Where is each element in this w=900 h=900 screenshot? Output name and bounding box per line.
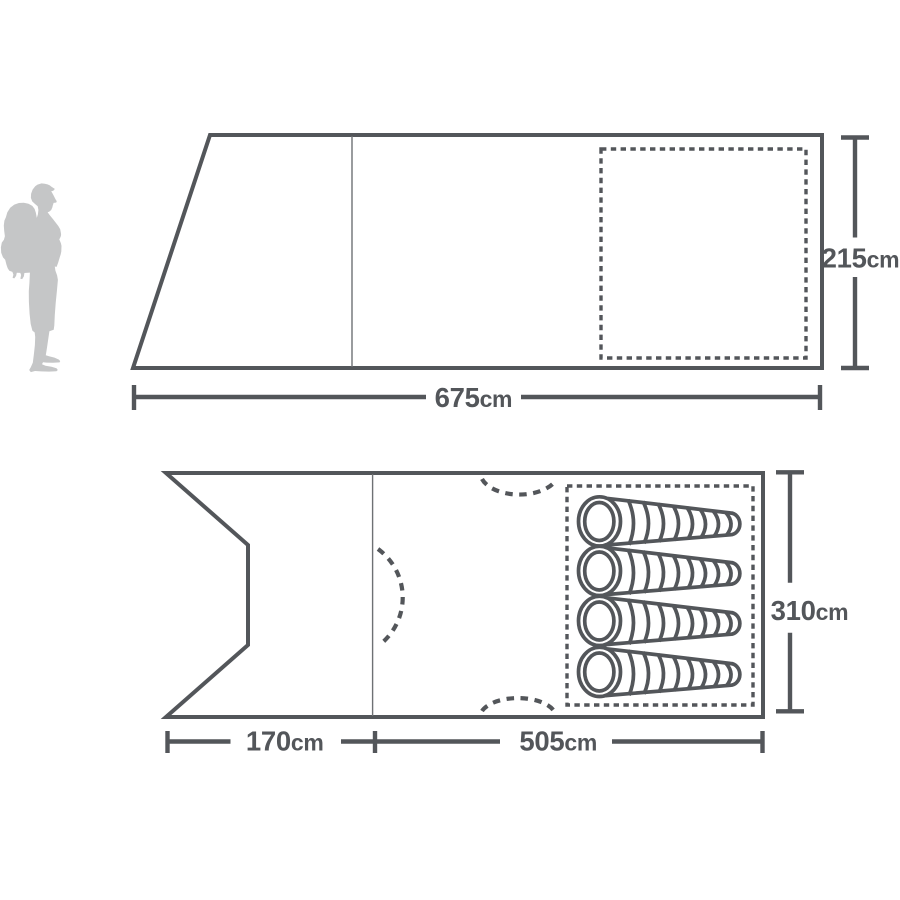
svg-text:675cm: 675cm: [435, 382, 513, 413]
svg-text:170cm: 170cm: [246, 725, 324, 756]
svg-text:505cm: 505cm: [519, 725, 597, 756]
svg-text:215cm: 215cm: [822, 243, 900, 274]
svg-text:310cm: 310cm: [771, 595, 849, 626]
